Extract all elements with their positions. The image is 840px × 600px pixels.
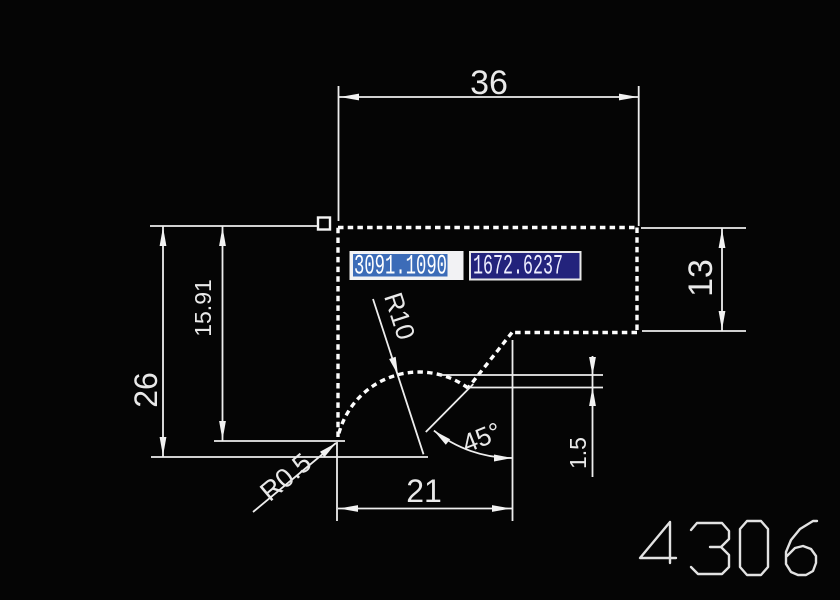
svg-text:15.91: 15.91 xyxy=(190,279,216,337)
svg-text:1672.6237: 1672.6237 xyxy=(473,252,563,283)
svg-text:21: 21 xyxy=(406,473,442,509)
svg-text:26: 26 xyxy=(128,372,164,408)
svg-text:1.5: 1.5 xyxy=(565,437,591,469)
svg-text:36: 36 xyxy=(470,64,508,102)
svg-text:3091.1090: 3091.1090 xyxy=(354,252,447,283)
svg-text:13: 13 xyxy=(682,259,720,297)
